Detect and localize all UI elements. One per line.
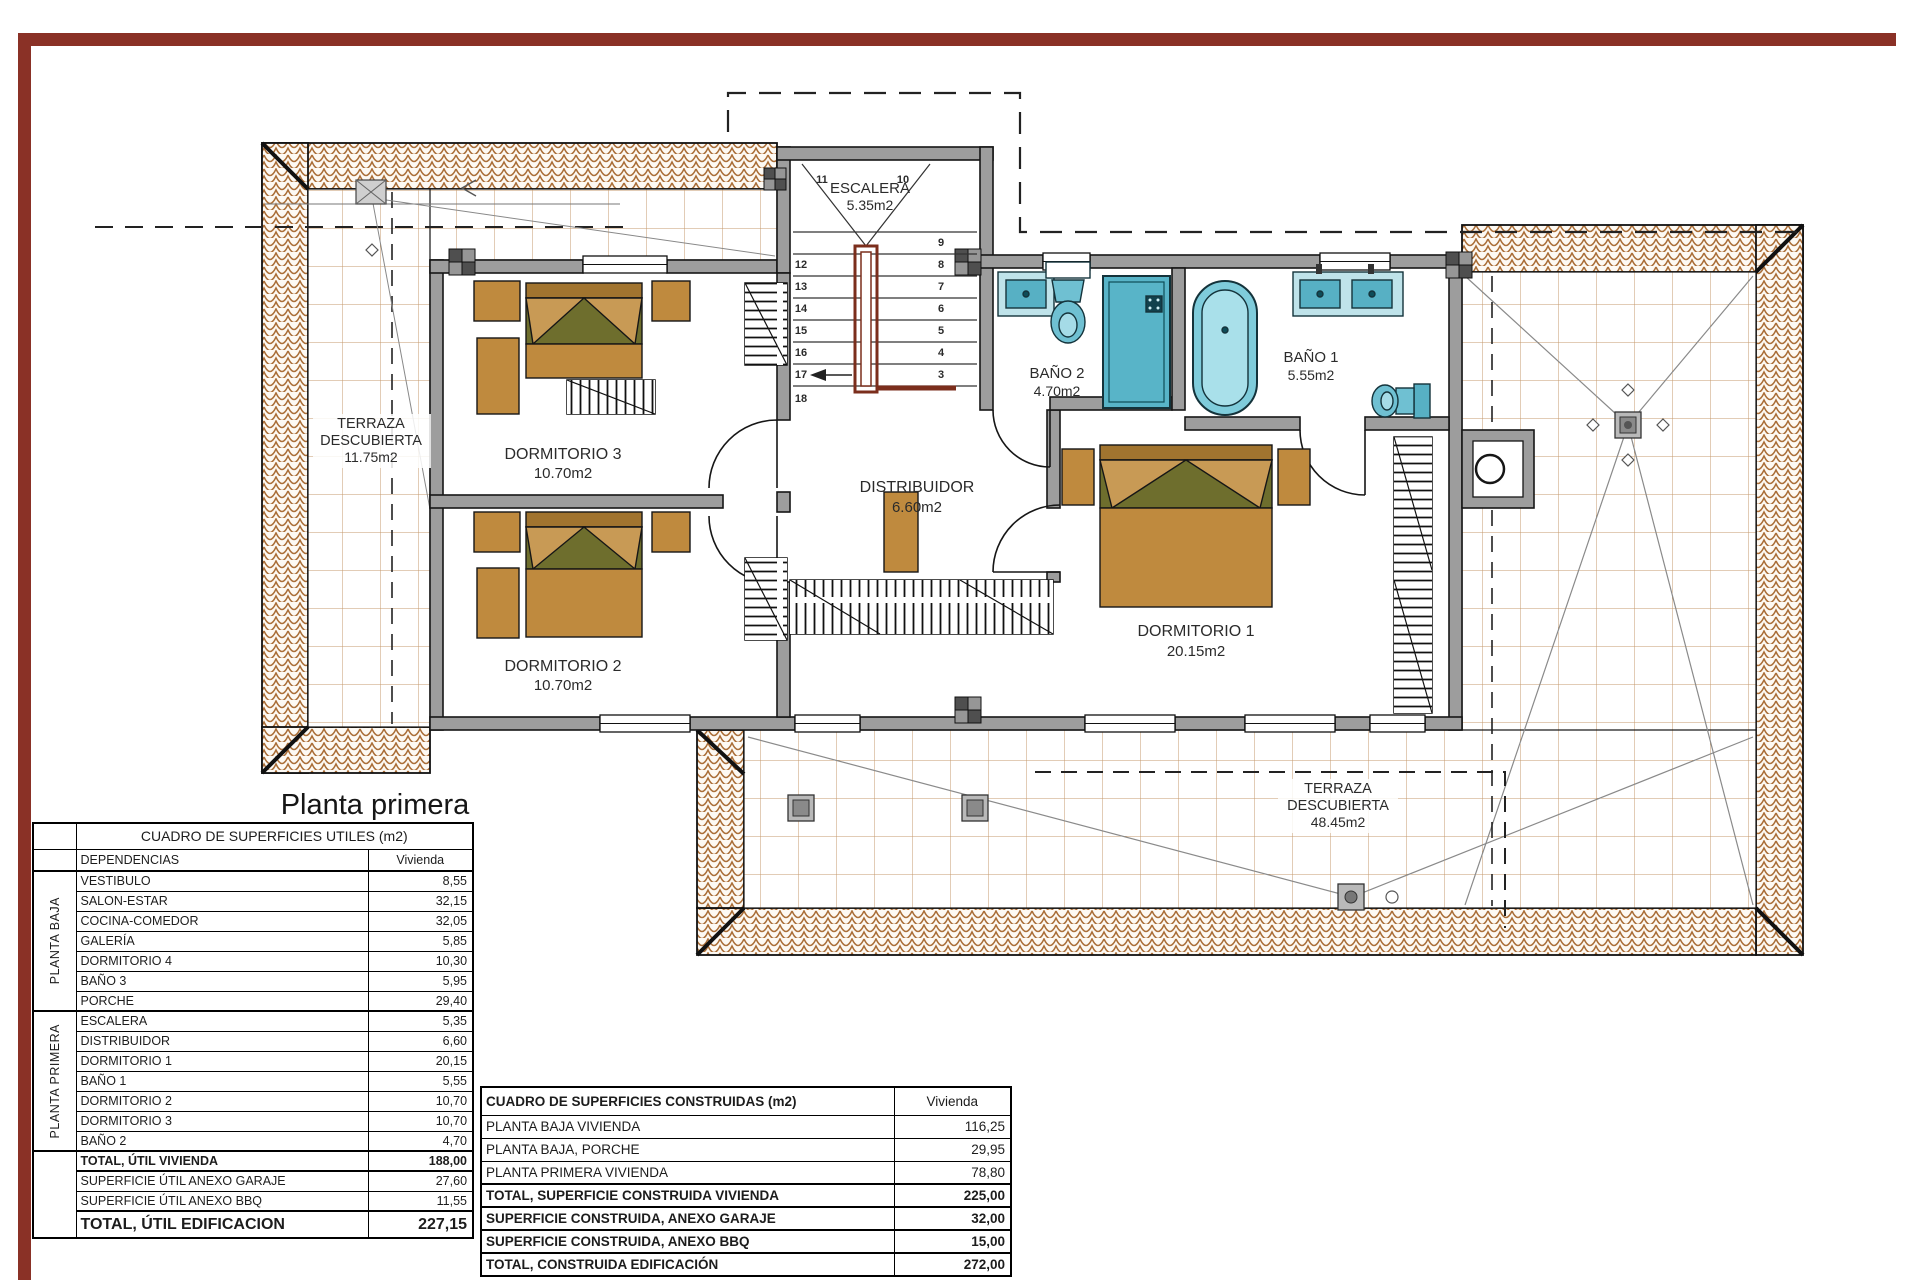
group-label: PLANTA PRIMERA — [48, 1024, 62, 1138]
fireplace — [1462, 430, 1534, 508]
table-row: TOTAL, ÚTIL VIVIENDA 188,00 — [33, 1151, 473, 1171]
table-row: BAÑO 15,55 — [33, 1071, 473, 1091]
svg-text:5.35m2: 5.35m2 — [847, 197, 894, 213]
table-row: DORMITORIO 210,70 — [33, 1091, 473, 1111]
table-superficies-utiles: CUADRO DE SUPERFICIES UTILES (m2) DEPEND… — [32, 822, 474, 1239]
table-row: PLANTA BAJA VESTIBULO8,55 — [33, 871, 473, 891]
svg-text:BAÑO 1: BAÑO 1 — [1283, 349, 1338, 366]
svg-text:DESCUBIERTA: DESCUBIERTA — [320, 433, 422, 449]
svg-text:DORMITORIO 1: DORMITORIO 1 — [1137, 623, 1254, 640]
svg-text:16: 16 — [795, 347, 807, 359]
table-row: PLANTA PRIMERA VIVIENDA78,80 — [481, 1161, 1011, 1184]
svg-text:7: 7 — [938, 281, 944, 293]
table-row: SUPERFICIE ÚTIL ANEXO GARAJE27,60 — [33, 1171, 473, 1191]
svg-text:5: 5 — [938, 325, 944, 337]
table-row: TOTAL, ÚTIL EDIFICACION 227,15 — [33, 1211, 473, 1238]
table-row: CUADRO DE SUPERFICIES CONSTRUIDAS (m2) V… — [481, 1087, 1011, 1115]
table-title: CUADRO DE SUPERFICIES CONSTRUIDAS (m2) — [481, 1087, 894, 1115]
svg-text:14: 14 — [795, 303, 808, 315]
table-row: PLANTA BAJA, PORCHE29,95 — [481, 1138, 1011, 1161]
svg-text:10.70m2: 10.70m2 — [534, 677, 592, 694]
svg-text:48.45m2: 48.45m2 — [1311, 814, 1366, 830]
svg-text:11.75m2: 11.75m2 — [344, 449, 398, 465]
svg-text:20.15m2: 20.15m2 — [1167, 643, 1225, 660]
svg-text:4: 4 — [938, 347, 945, 359]
svg-text:ESCALERA: ESCALERA — [830, 180, 910, 197]
svg-text:18: 18 — [795, 393, 807, 405]
table-row: BAÑO 35,95 — [33, 971, 473, 991]
table-title: CUADRO DE SUPERFICIES UTILES (m2) — [76, 823, 473, 849]
table-row: CUADRO DE SUPERFICIES UTILES (m2) — [33, 823, 473, 849]
table-row: SALON-ESTAR32,15 — [33, 891, 473, 911]
table-row: DORMITORIO 410,30 — [33, 951, 473, 971]
table-row: DISTRIBUIDOR6,60 — [33, 1031, 473, 1051]
table-row: PLANTA PRIMERA ESCALERA5,35 — [33, 1011, 473, 1031]
svg-text:8: 8 — [938, 259, 944, 271]
svg-text:17: 17 — [795, 369, 807, 381]
svg-text:4.70m2: 4.70m2 — [1034, 383, 1081, 399]
svg-text:6.60m2: 6.60m2 — [892, 499, 942, 516]
table-row: TOTAL, SUPERFICIE CONSTRUIDA VIVIENDA225… — [481, 1184, 1011, 1207]
svg-text:BAÑO 2: BAÑO 2 — [1029, 365, 1084, 382]
column-header: Vivienda — [894, 1087, 1011, 1115]
svg-text:13: 13 — [795, 281, 807, 293]
svg-text:DORMITORIO 2: DORMITORIO 2 — [504, 658, 621, 675]
table-superficies-construidas: CUADRO DE SUPERFICIES CONSTRUIDAS (m2) V… — [480, 1086, 1012, 1277]
group-label: PLANTA BAJA — [48, 897, 62, 984]
column-header: DEPENDENCIAS — [76, 849, 368, 871]
svg-text:12: 12 — [795, 259, 807, 271]
svg-text:DORMITORIO 3: DORMITORIO 3 — [504, 446, 621, 463]
column-header: Vivienda — [368, 849, 473, 871]
svg-text:10.70m2: 10.70m2 — [534, 465, 592, 482]
table-row: SUPERFICIE CONSTRUIDA, ANEXO BBQ15,00 — [481, 1230, 1011, 1253]
room-label-terraza-izquierda: TERRAZA DESCUBIERTA 11.75m2 — [313, 414, 431, 468]
table-row: DEPENDENCIAS Vivienda — [33, 849, 473, 871]
svg-text:5.55m2: 5.55m2 — [1288, 367, 1335, 383]
page-title: Planta primera — [250, 789, 500, 822]
table-row: GALERÍA5,85 — [33, 931, 473, 951]
room-label-terraza-inferior: TERRAZA DESCUBIERTA 48.45m2 — [1278, 779, 1398, 833]
svg-text:TERRAZA: TERRAZA — [337, 416, 405, 432]
table-row: SUPERFICIE CONSTRUIDA, ANEXO GARAJE32,00 — [481, 1207, 1011, 1230]
svg-text:DESCUBIERTA: DESCUBIERTA — [1287, 798, 1389, 814]
svg-text:TERRAZA: TERRAZA — [1304, 781, 1372, 797]
svg-text:9: 9 — [938, 237, 944, 249]
svg-text:3: 3 — [938, 369, 944, 381]
svg-text:11: 11 — [816, 174, 828, 186]
table-row: SUPERFICIE ÚTIL ANEXO BBQ11,55 — [33, 1191, 473, 1211]
table-row: PLANTA BAJA VIVIENDA116,25 — [481, 1115, 1011, 1138]
svg-text:DISTRIBUIDOR: DISTRIBUIDOR — [860, 479, 975, 496]
svg-text:6: 6 — [938, 303, 944, 315]
table-row: BAÑO 24,70 — [33, 1131, 473, 1151]
table-row: DORMITORIO 120,15 — [33, 1051, 473, 1071]
table-row: COCINA-COMEDOR32,05 — [33, 911, 473, 931]
table-row: DORMITORIO 310,70 — [33, 1111, 473, 1131]
svg-text:15: 15 — [795, 325, 807, 337]
table-row: PORCHE29,40 — [33, 991, 473, 1011]
table-row: TOTAL, CONSTRUIDA EDIFICACIÓN272,00 — [481, 1253, 1011, 1276]
